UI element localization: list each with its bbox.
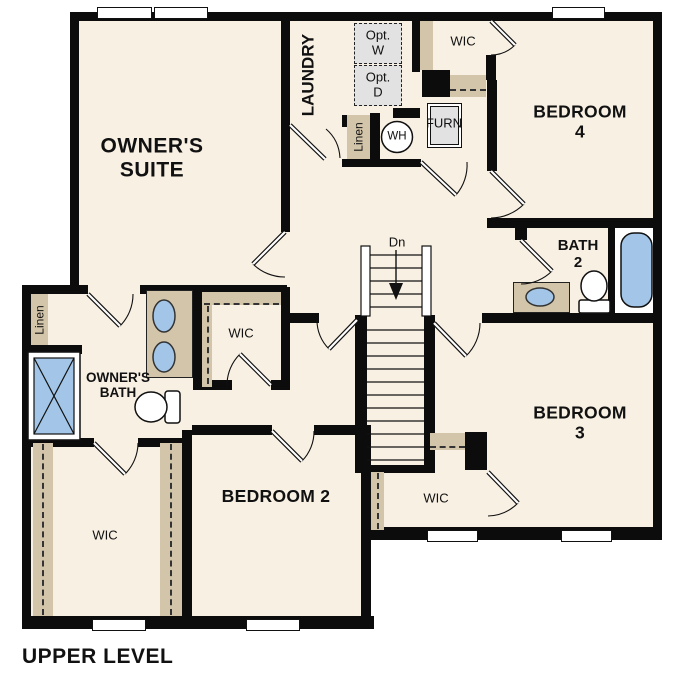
down-arrow-icon — [389, 283, 403, 300]
stairs — [361, 246, 431, 460]
room-label-linen-hall: Linen — [33, 305, 46, 334]
door — [253, 232, 285, 277]
floor-plan: OWNER'S SUITE LAUNDRY Linen Linen WIC WH… — [0, 0, 687, 687]
door — [488, 472, 518, 516]
water-heater-label: WH — [387, 131, 406, 144]
door — [521, 240, 552, 284]
sink — [153, 342, 175, 372]
door — [290, 125, 340, 159]
bathtub — [615, 228, 653, 313]
room-label-bedroom3: BEDROOM 3 — [527, 403, 634, 442]
door — [421, 162, 467, 195]
door — [227, 354, 271, 385]
room-label-wic-bedroom4: WIC — [450, 35, 475, 50]
room-label-bedroom2: BEDROOM 2 — [222, 487, 331, 507]
furnace-label: FURN — [426, 117, 462, 132]
room-label-owners-bath: OWNER'S BATH — [86, 370, 150, 400]
door — [317, 320, 357, 349]
door — [94, 443, 138, 474]
sink — [153, 300, 175, 332]
shower — [28, 352, 80, 440]
doors — [88, 21, 552, 516]
page-title: UPPER LEVEL — [22, 645, 173, 669]
door — [491, 171, 524, 218]
door — [88, 294, 133, 326]
door — [434, 323, 480, 356]
room-label-wic-bedroom2: WIC — [92, 529, 117, 544]
room-label-linen-laundry: Linen — [352, 122, 365, 151]
room-label-owners-suite: OWNER'S SUITE — [101, 134, 204, 181]
stairs-direction-label: Dn — [389, 236, 406, 251]
toilet — [579, 271, 610, 313]
door — [272, 431, 314, 461]
room-label-bedroom4: BEDROOM 4 — [527, 102, 634, 141]
door — [491, 21, 515, 55]
room-label-wic-bedroom3: WIC — [423, 492, 448, 507]
optional-washer-label: Opt. W — [366, 28, 391, 57]
room-label-wic-owners: WIC — [228, 327, 253, 342]
room-label-laundry: LAUNDRY — [298, 34, 317, 116]
sink — [526, 288, 554, 306]
optional-dryer-label: Opt. D — [366, 70, 391, 99]
room-label-bath2: BATH 2 — [558, 238, 599, 272]
